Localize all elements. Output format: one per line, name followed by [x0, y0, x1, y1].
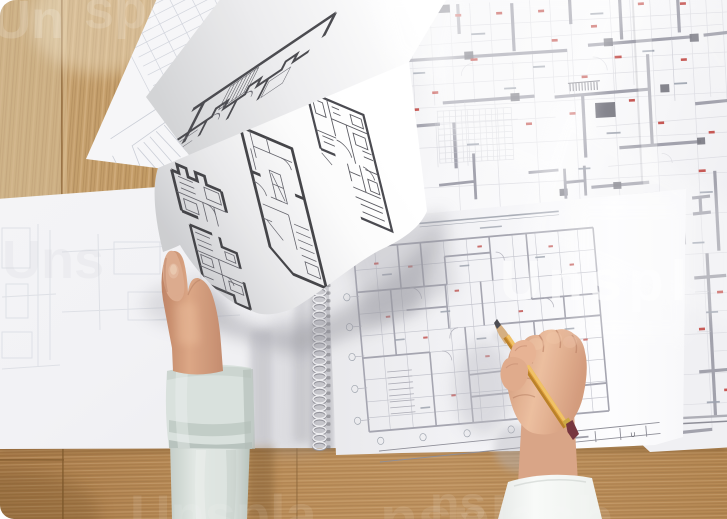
- svg-text:nsplash: nsplash: [380, 485, 614, 519]
- svg-text:spl: spl: [84, 0, 162, 40]
- svg-text:Unspla: Unspla: [130, 483, 318, 519]
- svg-text:Un: Un: [0, 0, 64, 50]
- svg-text:Unspl: Unspl: [500, 249, 693, 313]
